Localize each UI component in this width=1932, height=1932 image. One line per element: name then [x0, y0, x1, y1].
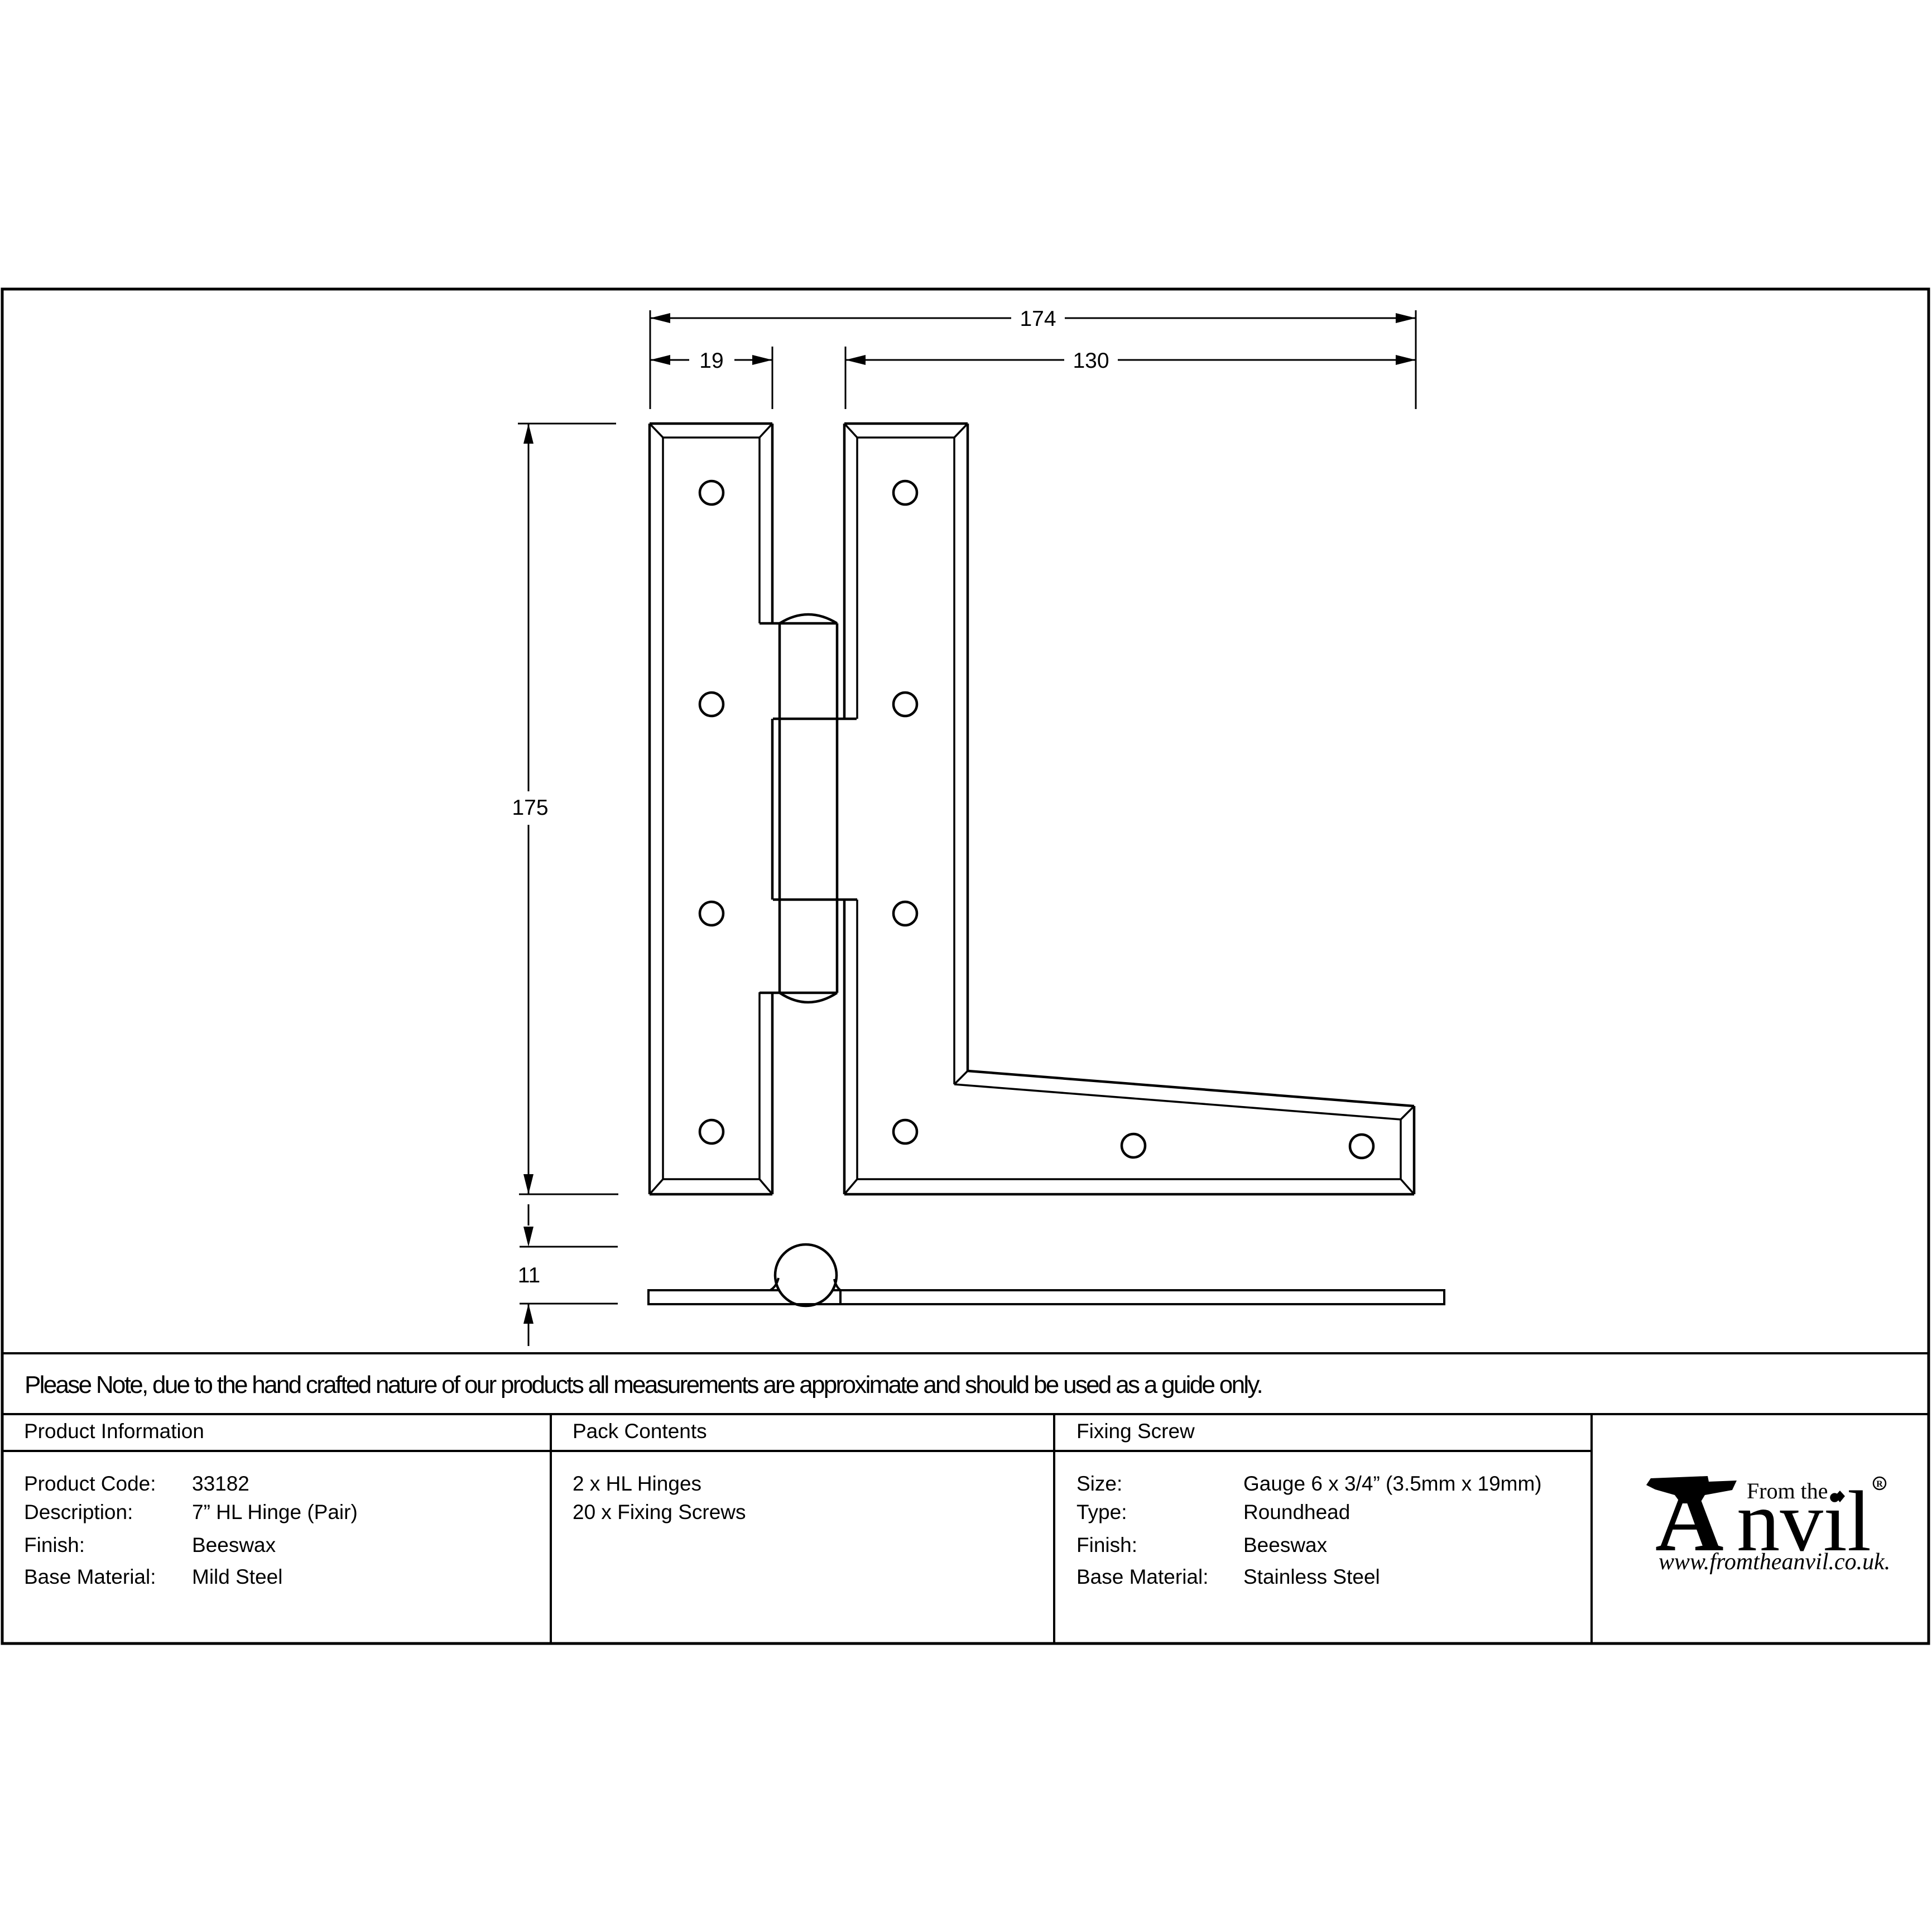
svg-text:Beeswax: Beeswax: [1243, 1534, 1328, 1556]
svg-text:2 x HL Hinges: 2 x HL Hinges: [573, 1472, 701, 1495]
svg-text:7” HL Hinge (Pair): 7” HL Hinge (Pair): [192, 1501, 358, 1524]
svg-text:Gauge 6 x 3/4” (3.5mm x 19mm): Gauge 6 x 3/4” (3.5mm x 19mm): [1243, 1472, 1542, 1495]
svg-text:Base Material:: Base Material:: [24, 1565, 156, 1588]
svg-text:174: 174: [1020, 307, 1056, 331]
svg-text:20 x Fixing Screws: 20 x Fixing Screws: [573, 1501, 746, 1524]
svg-text:Please Note, due to the hand c: Please Note, due to the hand crafted nat…: [25, 1371, 1262, 1398]
svg-text:19: 19: [699, 349, 723, 373]
svg-text:Type:: Type:: [1076, 1501, 1127, 1524]
svg-text:130: 130: [1073, 349, 1109, 373]
svg-text:Description:: Description:: [24, 1501, 133, 1524]
svg-text:Mild Steel: Mild Steel: [192, 1565, 282, 1588]
svg-text:Beeswax: Beeswax: [192, 1534, 276, 1556]
svg-text:Pack Contents: Pack Contents: [573, 1420, 707, 1443]
svg-text:33182: 33182: [192, 1472, 249, 1495]
svg-text:Size:: Size:: [1076, 1472, 1122, 1495]
svg-text:Stainless Steel: Stainless Steel: [1243, 1565, 1380, 1588]
svg-text:Base Material:: Base Material:: [1076, 1565, 1209, 1588]
svg-text:Product Code:: Product Code:: [24, 1472, 156, 1495]
svg-text:175: 175: [512, 796, 548, 820]
svg-text:Finish:: Finish:: [1076, 1534, 1137, 1556]
svg-text:11: 11: [518, 1263, 541, 1287]
svg-text:Finish:: Finish:: [24, 1534, 85, 1556]
svg-text:www.fromtheanvil.co.uk.: www.fromtheanvil.co.uk.: [1659, 1549, 1890, 1575]
svg-text:Roundhead: Roundhead: [1243, 1501, 1350, 1524]
svg-text:Product Information: Product Information: [24, 1420, 204, 1443]
svg-text:Fixing Screw: Fixing Screw: [1076, 1420, 1195, 1443]
svg-text:R: R: [1876, 1479, 1883, 1489]
